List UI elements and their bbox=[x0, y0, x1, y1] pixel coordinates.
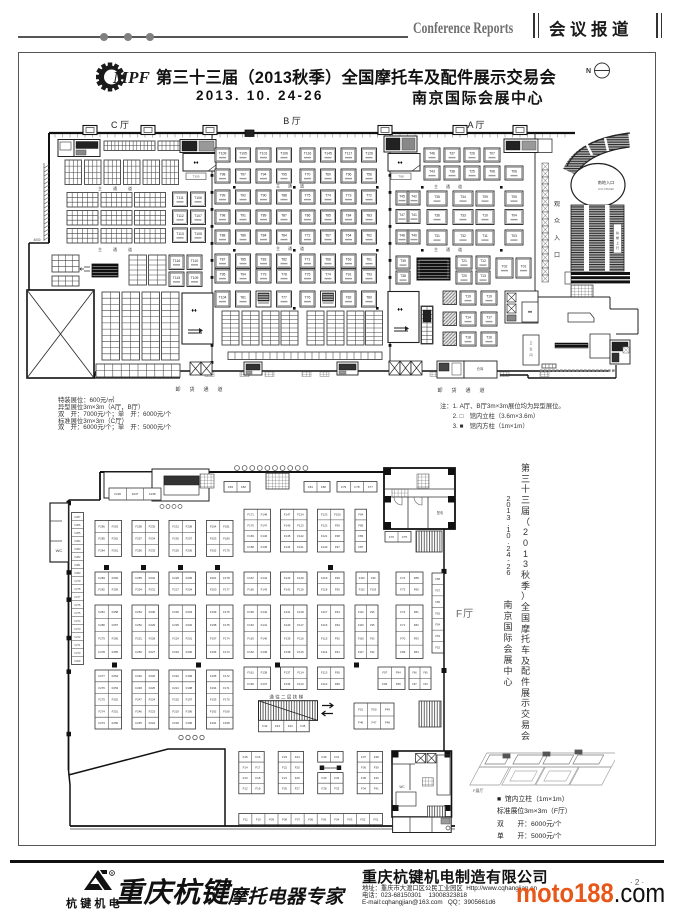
svg-text:F224: F224 bbox=[172, 637, 179, 641]
svg-text:F15: F15 bbox=[243, 755, 248, 759]
svg-text:F257: F257 bbox=[112, 623, 119, 627]
svg-text:F269: F269 bbox=[75, 659, 81, 663]
svg-text:F281: F281 bbox=[75, 563, 81, 567]
svg-text:F64: F64 bbox=[423, 683, 428, 686]
svg-text:F71: F71 bbox=[400, 623, 405, 627]
svg-text:F229: F229 bbox=[149, 623, 156, 627]
svg-text:F282: F282 bbox=[75, 555, 81, 559]
svg-text:F224: F224 bbox=[149, 698, 156, 702]
svg-text:F262: F262 bbox=[112, 537, 119, 541]
svg-text:F114: F114 bbox=[297, 671, 304, 675]
svg-text:F169: F169 bbox=[223, 709, 230, 713]
svg-text:F286: F286 bbox=[75, 523, 81, 527]
svg-text:F258: F258 bbox=[135, 525, 142, 529]
svg-text:F249: F249 bbox=[135, 674, 142, 678]
svg-text:F145: F145 bbox=[261, 545, 268, 549]
svg-text:F94: F94 bbox=[335, 610, 340, 614]
svg-text:F48: F48 bbox=[385, 721, 390, 725]
svg-text:F90: F90 bbox=[335, 671, 340, 675]
svg-text:F81: F81 bbox=[414, 610, 419, 614]
svg-text:F220: F220 bbox=[172, 698, 179, 702]
svg-text:F283: F283 bbox=[75, 547, 81, 551]
svg-text:F116: F116 bbox=[297, 637, 304, 641]
svg-text:F250: F250 bbox=[112, 721, 119, 725]
svg-text:F276: F276 bbox=[98, 686, 105, 690]
svg-text:F236: F236 bbox=[114, 492, 121, 496]
svg-text:F94: F94 bbox=[358, 513, 363, 517]
svg-text:F92: F92 bbox=[335, 637, 340, 641]
svg-text:F117: F117 bbox=[297, 623, 304, 627]
svg-text:F13: F13 bbox=[243, 776, 248, 780]
svg-text:F200: F200 bbox=[186, 650, 193, 654]
svg-text:F57: F57 bbox=[435, 588, 440, 592]
svg-text:F278: F278 bbox=[75, 587, 81, 591]
svg-text:F205: F205 bbox=[186, 576, 193, 580]
svg-text:F161: F161 bbox=[247, 671, 254, 675]
svg-text:F163: F163 bbox=[247, 637, 254, 641]
svg-text:F179: F179 bbox=[223, 549, 230, 553]
svg-text:F66: F66 bbox=[412, 672, 417, 675]
svg-text:F147: F147 bbox=[284, 513, 291, 517]
svg-text:F07: F07 bbox=[295, 817, 300, 821]
svg-text:F81: F81 bbox=[308, 485, 313, 489]
svg-text:F119: F119 bbox=[297, 587, 304, 591]
svg-text:F245: F245 bbox=[135, 721, 142, 725]
svg-text:F展厅: F展厅 bbox=[473, 787, 483, 793]
svg-text:F255: F255 bbox=[112, 650, 119, 654]
svg-text:F36: F36 bbox=[361, 765, 366, 769]
svg-text:配电: 配电 bbox=[437, 510, 444, 515]
svg-text:F144: F144 bbox=[261, 576, 268, 580]
svg-text:F100: F100 bbox=[359, 576, 365, 580]
svg-text:F54: F54 bbox=[435, 623, 440, 627]
svg-text:F52: F52 bbox=[435, 646, 440, 650]
svg-text:F96: F96 bbox=[370, 611, 375, 614]
svg-text:F29: F29 bbox=[322, 776, 327, 780]
svg-text:F37: F37 bbox=[361, 755, 366, 759]
svg-text:F281: F281 bbox=[98, 610, 105, 614]
svg-text:F109: F109 bbox=[358, 624, 364, 627]
svg-text:F49: F49 bbox=[385, 708, 390, 712]
svg-text:F110: F110 bbox=[358, 611, 364, 614]
svg-text:F43: F43 bbox=[275, 724, 280, 728]
svg-text:F76: F76 bbox=[389, 535, 394, 539]
svg-text:F114: F114 bbox=[321, 650, 328, 654]
svg-text:F275: F275 bbox=[98, 698, 105, 702]
svg-text:F223: F223 bbox=[149, 709, 156, 713]
svg-text:F208: F208 bbox=[186, 525, 193, 529]
svg-text:F97: F97 bbox=[382, 671, 387, 675]
svg-text:F226: F226 bbox=[172, 610, 179, 614]
svg-text:F197: F197 bbox=[210, 637, 217, 641]
svg-text:F194: F194 bbox=[210, 686, 217, 690]
svg-text:F250: F250 bbox=[135, 650, 142, 654]
svg-text:F256: F256 bbox=[112, 637, 119, 641]
svg-text:F175: F175 bbox=[223, 623, 230, 627]
svg-text:F08: F08 bbox=[282, 817, 287, 821]
svg-text:F74: F74 bbox=[400, 576, 405, 580]
svg-text:F99: F99 bbox=[335, 523, 340, 527]
svg-text:F254: F254 bbox=[112, 674, 119, 678]
svg-text:F221: F221 bbox=[172, 686, 179, 690]
svg-text:F247: F247 bbox=[135, 698, 142, 702]
svg-text:F113: F113 bbox=[321, 671, 328, 675]
svg-text:F203: F203 bbox=[186, 610, 193, 614]
svg-text:F201: F201 bbox=[210, 576, 217, 580]
svg-text:F79: F79 bbox=[341, 485, 346, 489]
svg-text:F142: F142 bbox=[261, 610, 268, 614]
svg-text:F23: F23 bbox=[282, 755, 287, 759]
svg-text:F73: F73 bbox=[400, 587, 405, 591]
svg-text:F140: F140 bbox=[284, 623, 291, 627]
svg-text:F197: F197 bbox=[186, 698, 193, 702]
svg-text:F229: F229 bbox=[172, 549, 179, 553]
svg-text:F170: F170 bbox=[247, 523, 254, 527]
svg-text:F168: F168 bbox=[247, 545, 254, 549]
svg-text:F46: F46 bbox=[358, 721, 363, 725]
svg-text:F18: F18 bbox=[255, 776, 260, 780]
svg-text:F30: F30 bbox=[322, 755, 327, 759]
svg-text:F164: F164 bbox=[247, 623, 254, 627]
svg-text:F95: F95 bbox=[335, 587, 340, 591]
svg-text:F35: F35 bbox=[361, 776, 366, 780]
svg-text:F227: F227 bbox=[149, 650, 156, 654]
svg-text:F107: F107 bbox=[358, 651, 364, 654]
svg-text:F86: F86 bbox=[358, 534, 363, 538]
svg-text:F32: F32 bbox=[334, 776, 339, 780]
svg-text:F80: F80 bbox=[321, 485, 326, 489]
svg-text:F58: F58 bbox=[435, 577, 440, 581]
svg-text:F45: F45 bbox=[300, 724, 305, 728]
svg-text:F165: F165 bbox=[247, 610, 254, 614]
svg-text:F113: F113 bbox=[297, 682, 304, 686]
svg-text:F273: F273 bbox=[98, 721, 105, 725]
svg-text:F202: F202 bbox=[186, 623, 193, 627]
svg-text:F121: F121 bbox=[321, 534, 328, 538]
svg-text:F42: F42 bbox=[262, 724, 267, 728]
svg-text:F178: F178 bbox=[223, 576, 230, 580]
svg-text:F232: F232 bbox=[149, 576, 156, 580]
svg-text:F177: F177 bbox=[223, 587, 230, 591]
svg-text:F31: F31 bbox=[334, 755, 339, 759]
svg-text:F230: F230 bbox=[149, 610, 156, 614]
svg-text:F252: F252 bbox=[135, 623, 142, 627]
svg-text:F198: F198 bbox=[186, 686, 193, 690]
svg-text:F192: F192 bbox=[210, 709, 217, 713]
svg-text:F96: F96 bbox=[382, 682, 387, 686]
svg-text:F122: F122 bbox=[297, 534, 304, 538]
svg-text:F280: F280 bbox=[98, 623, 105, 627]
svg-text:F286: F286 bbox=[98, 525, 105, 529]
svg-text:F72: F72 bbox=[400, 610, 405, 614]
svg-text:R: R bbox=[111, 872, 114, 876]
svg-text:F171: F171 bbox=[223, 686, 230, 690]
svg-text:F123: F123 bbox=[297, 523, 304, 527]
svg-text:F124: F124 bbox=[297, 513, 304, 517]
svg-text:F118: F118 bbox=[321, 587, 328, 591]
svg-text:F172: F172 bbox=[223, 674, 230, 678]
svg-text:F108: F108 bbox=[358, 638, 364, 641]
svg-text:F118: F118 bbox=[297, 610, 304, 614]
svg-text:F137: F137 bbox=[284, 671, 291, 675]
svg-text:F120: F120 bbox=[297, 576, 304, 580]
svg-text:F83: F83 bbox=[228, 485, 233, 489]
svg-text:F138: F138 bbox=[284, 650, 291, 654]
svg-text:F140: F140 bbox=[261, 637, 268, 641]
svg-text:F138: F138 bbox=[261, 671, 268, 675]
svg-text:F77: F77 bbox=[368, 485, 373, 489]
svg-text:F273: F273 bbox=[75, 627, 81, 631]
svg-text:F274: F274 bbox=[98, 709, 105, 713]
svg-text:F67: F67 bbox=[412, 683, 417, 686]
svg-text:F115: F115 bbox=[321, 637, 328, 641]
svg-text:F195: F195 bbox=[210, 674, 217, 678]
svg-text:WC: WC bbox=[399, 785, 405, 789]
svg-text:F136: F136 bbox=[284, 682, 291, 686]
svg-text:F256: F256 bbox=[135, 549, 142, 553]
svg-text:F146: F146 bbox=[261, 534, 268, 538]
svg-text:F280: F280 bbox=[75, 571, 81, 575]
svg-text:F95: F95 bbox=[396, 682, 401, 686]
svg-text:F116: F116 bbox=[321, 623, 328, 627]
svg-text:F261: F261 bbox=[112, 549, 119, 553]
svg-text:F21: F21 bbox=[282, 776, 287, 780]
svg-text:F92: F92 bbox=[370, 651, 375, 654]
svg-text:F22: F22 bbox=[282, 765, 287, 769]
svg-text:F142: F142 bbox=[284, 587, 291, 591]
svg-text:F148: F148 bbox=[261, 513, 268, 517]
svg-text:F255: F255 bbox=[135, 576, 142, 580]
svg-text:F84: F84 bbox=[414, 650, 419, 654]
svg-text:F117: F117 bbox=[321, 610, 328, 614]
svg-text:F201: F201 bbox=[186, 637, 193, 641]
svg-text:F40: F40 bbox=[374, 776, 379, 780]
svg-text:F137: F137 bbox=[261, 682, 268, 686]
svg-text:F191: F191 bbox=[210, 721, 217, 725]
svg-text:F03: F03 bbox=[347, 817, 352, 821]
svg-text:F170: F170 bbox=[223, 698, 230, 702]
svg-text:F82: F82 bbox=[241, 485, 246, 489]
svg-text:F230: F230 bbox=[172, 537, 179, 541]
svg-text:F147: F147 bbox=[261, 523, 268, 527]
svg-text:F259: F259 bbox=[112, 587, 119, 591]
svg-text:F98: F98 bbox=[335, 534, 340, 538]
svg-text:F271: F271 bbox=[75, 643, 81, 647]
svg-text:F176: F176 bbox=[223, 610, 230, 614]
svg-text:F222: F222 bbox=[149, 721, 156, 725]
svg-text:F33: F33 bbox=[334, 787, 339, 791]
svg-text:F196: F196 bbox=[186, 709, 193, 713]
svg-text:F06: F06 bbox=[308, 817, 313, 821]
svg-text:F93: F93 bbox=[370, 638, 375, 641]
svg-text:F102: F102 bbox=[359, 587, 365, 591]
svg-text:F143: F143 bbox=[284, 576, 291, 580]
svg-text:F145: F145 bbox=[284, 534, 291, 538]
svg-text:F139: F139 bbox=[284, 637, 291, 641]
svg-text:F122: F122 bbox=[321, 523, 328, 527]
svg-text:F17: F17 bbox=[255, 765, 260, 769]
svg-text:F26: F26 bbox=[295, 776, 300, 780]
svg-text:F51: F51 bbox=[358, 708, 363, 712]
svg-text:F02: F02 bbox=[360, 817, 365, 821]
svg-text:F123: F123 bbox=[321, 513, 328, 517]
svg-text:F174: F174 bbox=[223, 637, 230, 641]
svg-text:F238: F238 bbox=[149, 492, 156, 496]
svg-text:F95: F95 bbox=[370, 624, 375, 627]
svg-text:F141: F141 bbox=[284, 610, 291, 614]
svg-text:F38: F38 bbox=[374, 755, 379, 759]
svg-text:F99: F99 bbox=[371, 576, 376, 580]
svg-text:F233: F233 bbox=[149, 549, 156, 553]
svg-text:F120: F120 bbox=[321, 545, 328, 549]
svg-text:F96: F96 bbox=[335, 576, 340, 580]
svg-text:F10: F10 bbox=[256, 817, 261, 821]
svg-text:F56: F56 bbox=[435, 600, 440, 604]
svg-text:F225: F225 bbox=[149, 686, 156, 690]
svg-text:F70: F70 bbox=[400, 637, 405, 641]
svg-text:F206: F206 bbox=[186, 549, 193, 553]
svg-text:F87: F87 bbox=[358, 545, 363, 549]
svg-text:F115: F115 bbox=[297, 650, 304, 654]
svg-text:F258: F258 bbox=[112, 610, 119, 614]
svg-text:WC: WC bbox=[56, 548, 63, 553]
svg-text:F278: F278 bbox=[98, 650, 105, 654]
svg-text:F50: F50 bbox=[372, 708, 377, 712]
svg-text:F282: F282 bbox=[98, 587, 105, 591]
svg-text:F277: F277 bbox=[75, 595, 81, 599]
svg-text:F01: F01 bbox=[373, 817, 378, 821]
svg-text:F53: F53 bbox=[435, 634, 440, 638]
svg-text:F237: F237 bbox=[132, 492, 139, 496]
svg-text:F103: F103 bbox=[370, 587, 376, 591]
svg-text:F277: F277 bbox=[98, 674, 105, 678]
svg-text:F168: F168 bbox=[223, 721, 230, 725]
svg-text:F283: F283 bbox=[98, 576, 105, 580]
svg-text:F180: F180 bbox=[223, 537, 230, 541]
svg-text:F193: F193 bbox=[210, 698, 217, 702]
svg-text:F195: F195 bbox=[186, 721, 193, 725]
svg-text:F202: F202 bbox=[210, 549, 217, 553]
svg-text:F253: F253 bbox=[112, 686, 119, 690]
svg-text:F173: F173 bbox=[223, 650, 230, 654]
svg-text:F287: F287 bbox=[75, 515, 81, 519]
svg-text:F91: F91 bbox=[335, 650, 340, 654]
svg-text:F85: F85 bbox=[358, 523, 363, 527]
svg-text:F41: F41 bbox=[374, 787, 379, 791]
svg-text:F69: F69 bbox=[400, 650, 405, 654]
svg-text:F44: F44 bbox=[288, 724, 293, 728]
svg-text:F20: F20 bbox=[282, 787, 287, 791]
svg-text:F254: F254 bbox=[135, 587, 142, 591]
svg-text:F47: F47 bbox=[372, 721, 377, 725]
svg-text:F14: F14 bbox=[243, 765, 248, 769]
svg-text:F112: F112 bbox=[321, 682, 328, 686]
svg-text:F246: F246 bbox=[135, 709, 142, 713]
svg-text:F251: F251 bbox=[112, 709, 119, 713]
svg-text:F169: F169 bbox=[247, 534, 254, 538]
svg-text:通往二层扶梯: 通往二层扶梯 bbox=[269, 694, 304, 701]
svg-text:F218: F218 bbox=[172, 721, 179, 725]
svg-text:F167: F167 bbox=[247, 576, 254, 580]
svg-text:F80: F80 bbox=[414, 587, 419, 591]
svg-text:F27: F27 bbox=[295, 787, 300, 791]
svg-text:F09: F09 bbox=[269, 817, 274, 821]
svg-text:F171: F171 bbox=[247, 513, 254, 517]
svg-text:F231: F231 bbox=[172, 525, 179, 529]
svg-text:F28: F28 bbox=[322, 787, 327, 791]
svg-text:F199: F199 bbox=[186, 674, 193, 678]
svg-text:F228: F228 bbox=[172, 576, 179, 580]
svg-text:F276: F276 bbox=[75, 603, 81, 607]
svg-text:F88: F88 bbox=[414, 576, 419, 580]
svg-text:F199: F199 bbox=[210, 610, 217, 614]
svg-text:F143: F143 bbox=[261, 587, 268, 591]
svg-text:F34: F34 bbox=[361, 787, 366, 791]
svg-text:F05: F05 bbox=[321, 817, 326, 821]
svg-text:F162: F162 bbox=[247, 650, 254, 654]
svg-text:F24: F24 bbox=[295, 755, 300, 759]
svg-text:F160: F160 bbox=[247, 682, 254, 686]
svg-text:F144: F144 bbox=[284, 545, 291, 549]
svg-text:F207: F207 bbox=[186, 537, 193, 541]
svg-text:F12: F12 bbox=[243, 787, 248, 791]
svg-text:F274: F274 bbox=[75, 619, 81, 623]
svg-text:F121: F121 bbox=[297, 545, 304, 549]
svg-text:F19: F19 bbox=[255, 787, 260, 791]
svg-text:F55: F55 bbox=[435, 611, 440, 615]
svg-text:F196: F196 bbox=[210, 650, 217, 654]
svg-text:F04: F04 bbox=[334, 817, 339, 821]
svg-text:F198: F198 bbox=[210, 623, 217, 627]
svg-text:F200: F200 bbox=[210, 587, 217, 591]
svg-text:F223: F223 bbox=[172, 650, 179, 654]
svg-text:F272: F272 bbox=[75, 635, 81, 639]
svg-text:F65: F65 bbox=[423, 672, 428, 675]
svg-text:F78: F78 bbox=[355, 485, 360, 489]
svg-text:F203: F203 bbox=[210, 537, 217, 541]
svg-text:F181: F181 bbox=[223, 525, 230, 529]
svg-text:F82: F82 bbox=[414, 623, 419, 627]
svg-text:F89: F89 bbox=[335, 682, 340, 686]
svg-text:F225: F225 bbox=[172, 623, 179, 627]
svg-text:F93: F93 bbox=[335, 623, 340, 627]
svg-text:F204: F204 bbox=[186, 587, 193, 591]
svg-text:F285: F285 bbox=[98, 537, 105, 541]
svg-text:F279: F279 bbox=[75, 579, 81, 583]
svg-text:F119: F119 bbox=[321, 576, 328, 580]
svg-text:F251: F251 bbox=[135, 637, 142, 641]
svg-text:F228: F228 bbox=[149, 637, 156, 641]
svg-text:F227: F227 bbox=[172, 587, 179, 591]
svg-text:F248: F248 bbox=[135, 686, 142, 690]
svg-text:F284: F284 bbox=[75, 539, 81, 543]
svg-text:F11: F11 bbox=[243, 817, 248, 821]
svg-text:F235: F235 bbox=[149, 525, 156, 529]
svg-text:F252: F252 bbox=[112, 698, 119, 702]
svg-text:F204: F204 bbox=[210, 525, 217, 529]
svg-text:F25: F25 bbox=[295, 765, 300, 769]
svg-text:F146: F146 bbox=[284, 523, 291, 527]
svg-text:F94: F94 bbox=[396, 671, 401, 675]
svg-text:F275: F275 bbox=[75, 611, 81, 615]
svg-text:F16: F16 bbox=[255, 755, 260, 759]
svg-text:F97: F97 bbox=[335, 545, 340, 549]
svg-text:F166: F166 bbox=[247, 587, 254, 591]
svg-text:F285: F285 bbox=[75, 531, 81, 535]
svg-text:F260: F260 bbox=[112, 576, 119, 580]
svg-text:F231: F231 bbox=[149, 587, 156, 591]
svg-text:F219: F219 bbox=[172, 709, 179, 713]
